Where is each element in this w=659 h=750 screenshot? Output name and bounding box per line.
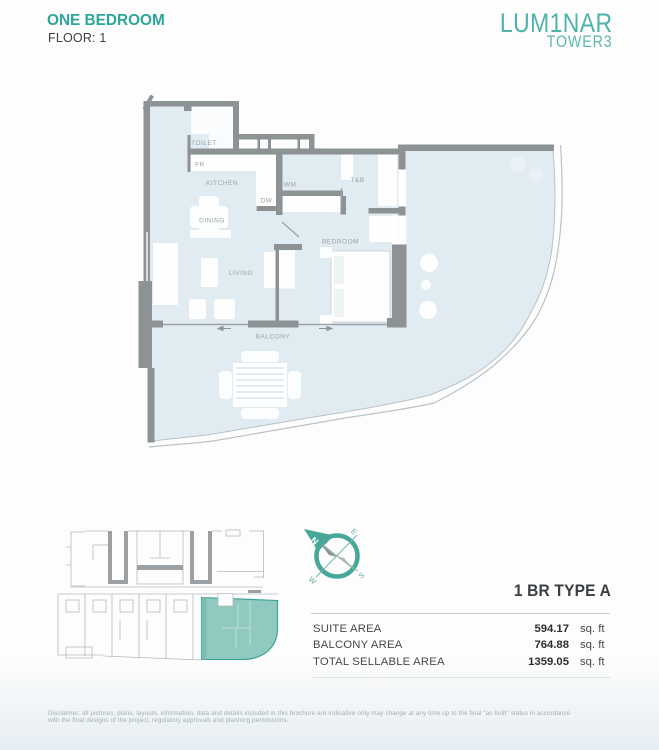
- svg-text:DINING: DINING: [199, 218, 225, 225]
- svg-text:TOILET: TOILET: [191, 140, 217, 147]
- svg-text:S: S: [357, 570, 367, 580]
- svg-text:T&B: T&B: [350, 177, 364, 184]
- svg-text:LIVING: LIVING: [229, 270, 253, 277]
- svg-text:E: E: [349, 527, 359, 537]
- svg-text:FR: FR: [195, 162, 205, 169]
- svg-text:BALCONY: BALCONY: [256, 334, 291, 341]
- svg-text:KITCHEN: KITCHEN: [206, 180, 238, 187]
- svg-text:WM: WM: [284, 182, 297, 189]
- svg-text:BEDROOM: BEDROOM: [322, 239, 359, 246]
- svg-text:DW: DW: [261, 198, 273, 205]
